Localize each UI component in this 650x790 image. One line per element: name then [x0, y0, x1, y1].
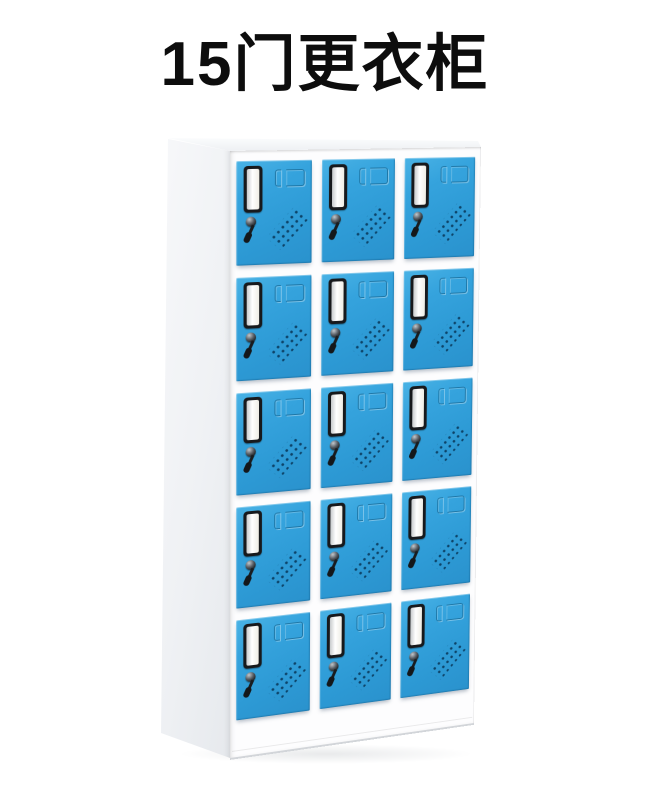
label-card-slot: [328, 391, 346, 437]
vent-holes-icon: [265, 658, 307, 701]
label-card: [247, 513, 259, 553]
recessed-handle-icon: [436, 603, 463, 622]
handle-right-notch: [369, 280, 387, 297]
label-card-slot: [327, 502, 345, 548]
hanging-key-icon: [243, 340, 258, 360]
handle-left-notch: [438, 388, 444, 405]
handle-left-notch: [441, 166, 447, 183]
vent-holes-icon: [432, 202, 472, 244]
recessed-handle-icon: [274, 510, 303, 529]
locker-door: [401, 486, 471, 590]
label-card-slot: [243, 622, 261, 669]
key-bow: [326, 676, 336, 688]
locker-door: [236, 612, 310, 721]
handle-left-notch: [274, 399, 280, 416]
handle-left-notch: [275, 169, 281, 186]
hanging-key-icon: [327, 448, 341, 468]
door-grid: [230, 147, 481, 758]
key-bow: [410, 226, 420, 238]
label-card: [330, 616, 342, 656]
hanging-key-icon: [326, 669, 340, 689]
product-image: 15门更衣柜: [0, 0, 650, 790]
recessed-handle-icon: [358, 280, 387, 298]
handle-right-notch: [451, 166, 468, 183]
handle-right-notch: [448, 495, 465, 513]
handle-right-notch: [285, 621, 303, 640]
handle-left-notch: [274, 512, 280, 529]
handle-right-notch: [449, 387, 466, 404]
vent-holes-icon: [428, 638, 467, 680]
key-bow: [242, 461, 252, 473]
recessed-handle-icon: [358, 392, 387, 410]
recessed-handle-icon: [437, 495, 465, 514]
locker-door: [236, 388, 311, 495]
label-card-slot: [244, 282, 263, 329]
key-bow: [326, 566, 336, 578]
locker-door: [322, 158, 395, 262]
key-bow: [327, 455, 337, 467]
vent-holes-icon: [431, 313, 471, 355]
label-card-slot: [328, 278, 346, 324]
label-card: [330, 506, 342, 546]
handle-right-notch: [286, 284, 304, 302]
handle-left-notch: [356, 614, 362, 631]
handle-right-notch: [367, 612, 385, 630]
handle-left-notch: [275, 285, 281, 302]
handle-right-notch: [368, 503, 386, 521]
vent-holes-icon: [348, 648, 388, 690]
key-bow: [242, 575, 252, 587]
key-bow: [408, 448, 418, 460]
handle-right-notch: [370, 167, 388, 184]
label-card: [332, 167, 344, 207]
handle-left-notch: [358, 394, 364, 411]
handle-right-notch: [286, 398, 304, 416]
hanging-key-icon: [407, 550, 421, 569]
recessed-handle-icon: [356, 612, 384, 631]
vent-holes-icon: [266, 321, 308, 365]
hanging-key-icon: [242, 454, 256, 474]
key-bow: [407, 557, 417, 569]
label-card: [247, 169, 260, 210]
label-card: [412, 388, 424, 427]
cabinet-side-panel: [160, 138, 231, 759]
locker-door: [236, 501, 310, 609]
vent-holes-icon: [266, 206, 309, 250]
handle-left-notch: [439, 278, 445, 295]
locker-door: [402, 378, 472, 481]
locker-door: [404, 157, 475, 259]
label-card: [246, 626, 258, 666]
key-bow: [409, 337, 419, 349]
vent-holes-icon: [266, 547, 308, 590]
label-card: [331, 281, 343, 321]
hanging-key-icon: [327, 335, 341, 354]
label-card: [247, 400, 259, 441]
vent-holes-icon: [349, 539, 390, 582]
recessed-handle-icon: [274, 398, 304, 417]
recessed-handle-icon: [274, 621, 303, 641]
handle-right-notch: [369, 392, 387, 410]
label-card-slot: [243, 510, 262, 557]
hanging-key-icon: [242, 567, 256, 587]
cabinet-front-panel: [230, 147, 481, 760]
handle-right-notch: [450, 277, 467, 294]
key-bow: [406, 665, 416, 677]
locker-door: [403, 268, 474, 371]
label-card-slot: [409, 385, 427, 430]
hanging-key-icon: [242, 679, 256, 699]
vent-holes-icon: [429, 531, 468, 573]
recessed-handle-icon: [438, 387, 466, 405]
handle-left-notch: [436, 605, 442, 622]
label-card: [247, 285, 259, 326]
hanging-key-icon: [328, 222, 342, 241]
vent-holes-icon: [430, 422, 469, 464]
label-card-slot: [244, 166, 263, 213]
handle-right-notch: [446, 603, 463, 621]
vent-holes-icon: [349, 428, 390, 471]
recessed-handle-icon: [275, 284, 305, 302]
label-card: [410, 607, 422, 646]
key-bow: [328, 228, 338, 240]
label-card: [413, 278, 425, 317]
hanging-key-icon: [326, 559, 340, 579]
hanging-key-icon: [243, 225, 258, 245]
locker-door: [321, 383, 394, 488]
vent-holes-icon: [266, 435, 308, 478]
handle-right-notch: [286, 169, 305, 187]
label-card-slot: [407, 603, 425, 648]
vent-holes-icon: [351, 204, 392, 247]
hanging-key-icon: [408, 441, 422, 460]
label-card-slot: [329, 164, 347, 210]
recessed-handle-icon: [439, 277, 467, 295]
locker-cabinet: [0, 0, 650, 790]
handle-left-notch: [358, 281, 364, 298]
key-bow: [327, 342, 337, 354]
locker-door: [320, 603, 392, 710]
hanging-key-icon: [409, 331, 423, 350]
label-card: [411, 498, 423, 537]
key-bow: [243, 231, 253, 244]
handle-left-notch: [274, 624, 280, 641]
recessed-handle-icon: [275, 169, 305, 187]
vent-holes-icon: [350, 317, 391, 360]
key-bow: [242, 686, 252, 698]
handle-left-notch: [357, 505, 363, 522]
locker-door: [400, 594, 470, 699]
locker-door: [236, 160, 312, 266]
label-card-slot: [408, 495, 426, 540]
recessed-handle-icon: [441, 166, 469, 183]
recessed-handle-icon: [359, 167, 388, 184]
locker-door: [321, 271, 394, 376]
hanging-key-icon: [410, 219, 424, 238]
handle-right-notch: [285, 510, 303, 528]
handle-left-notch: [359, 168, 365, 185]
label-card-slot: [243, 397, 262, 444]
hanging-key-icon: [406, 658, 419, 677]
locker-door: [320, 493, 392, 599]
label-card: [414, 166, 426, 205]
key-bow: [243, 347, 253, 359]
label-card-slot: [327, 613, 345, 659]
locker-door: [236, 275, 311, 382]
label-card-slot: [410, 275, 428, 320]
recessed-handle-icon: [357, 503, 385, 522]
label-card: [331, 394, 343, 434]
handle-left-notch: [437, 497, 443, 514]
label-card-slot: [411, 163, 429, 208]
